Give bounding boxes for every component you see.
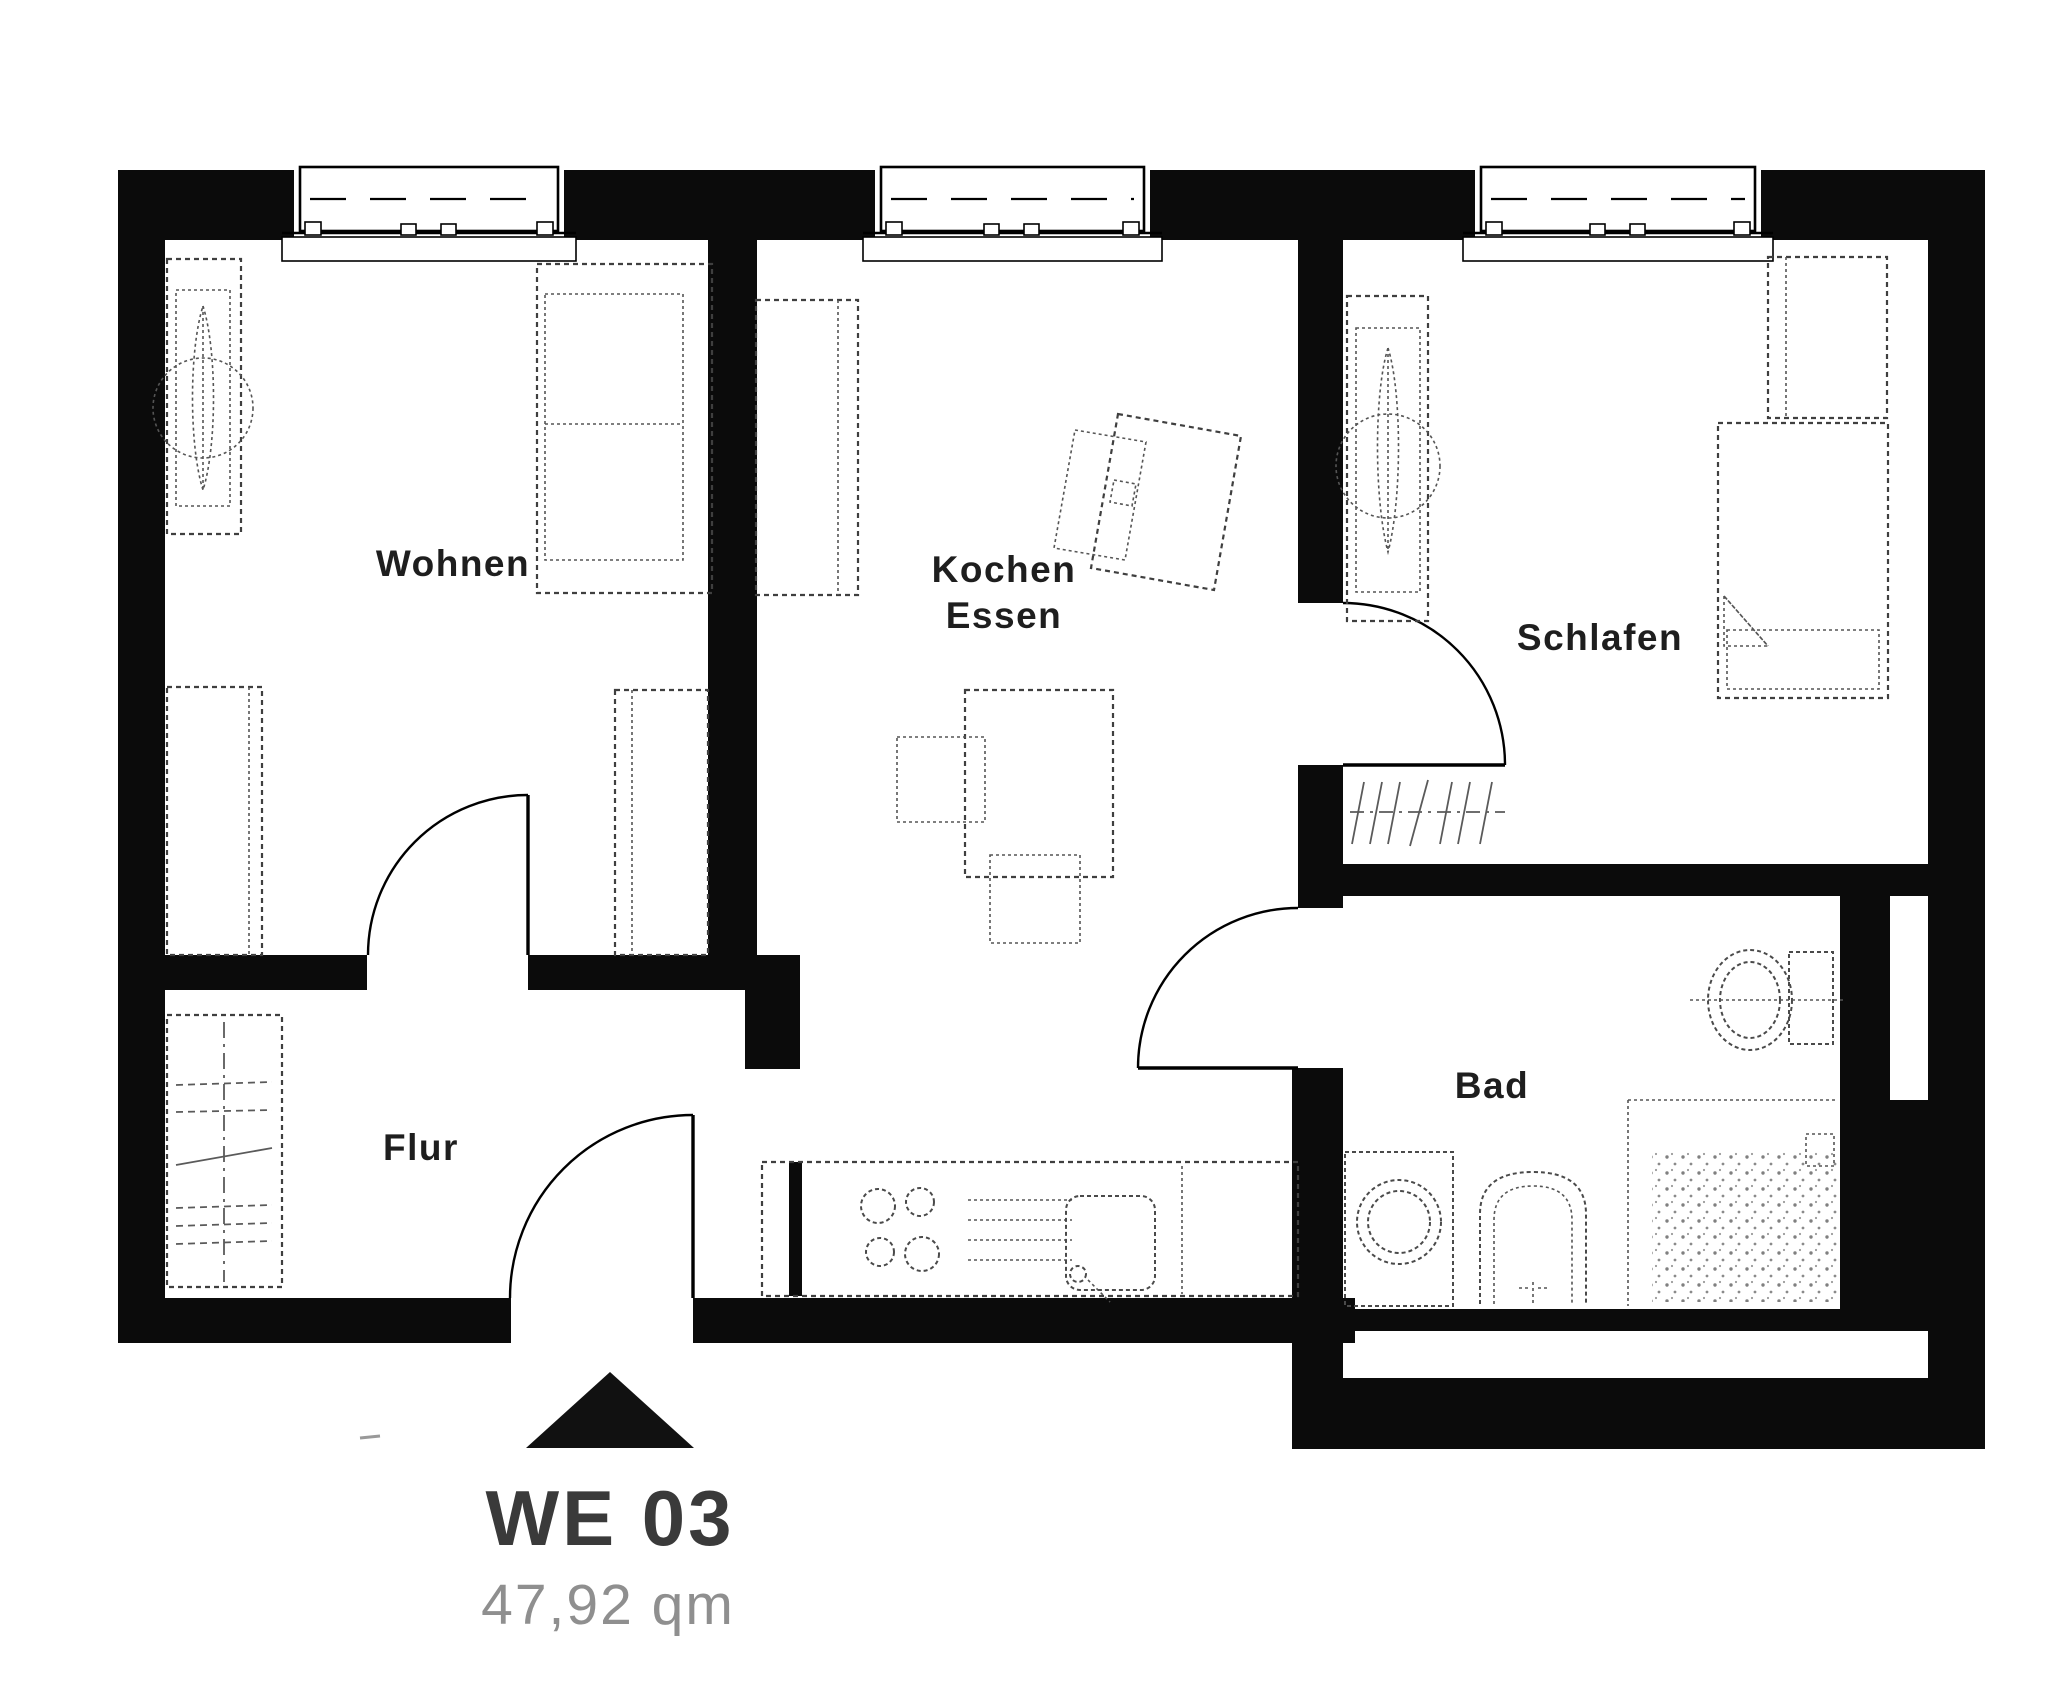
wall-flur-kochen-stub <box>745 955 800 1069</box>
schlafen-window <box>1463 164 1773 261</box>
wall-schlafen-bad <box>1343 864 1928 896</box>
entrance-marker <box>360 1372 694 1448</box>
wohnen-cabinet-left <box>167 687 262 955</box>
kitchen-sink-icon <box>1066 1196 1155 1302</box>
wohnen-furniture <box>153 259 712 955</box>
kochen-window <box>863 164 1162 261</box>
wohnen-door <box>368 795 528 955</box>
wall-shower-side <box>1840 1100 1928 1309</box>
schlafen-radiator-icon <box>1350 780 1505 846</box>
wohnen-window <box>282 164 576 261</box>
bad-door <box>1138 908 1298 1068</box>
kochen-furniture <box>756 300 1298 1302</box>
flur-radiator-icon <box>167 1015 282 1287</box>
schlafen-furniture <box>1336 257 1888 846</box>
counter-end-panel <box>789 1162 802 1296</box>
kochen-label-line1: Kochen <box>932 549 1077 590</box>
stray-mark <box>360 1436 380 1438</box>
bad-fixtures <box>1345 950 1843 1306</box>
washing-machine-icon <box>1345 1152 1453 1306</box>
toilet-icon <box>1690 950 1843 1050</box>
shower-area <box>1628 1100 1838 1306</box>
wall-wohnen-bottom-right <box>528 955 757 990</box>
wohnen-sofa <box>537 264 712 593</box>
wall-wohnen-bottom-left <box>165 955 367 990</box>
wall-left <box>118 170 165 1343</box>
hob-icon <box>861 1188 939 1271</box>
wall-right <box>1928 170 1985 1449</box>
schlafen-cabinet <box>1768 257 1887 418</box>
windows <box>282 164 1773 261</box>
entrance-door <box>510 1115 693 1298</box>
wall-bottom-right <box>1318 1378 1985 1449</box>
wall-duct-wc <box>1840 896 1890 1100</box>
wall-wohnen-kochen <box>708 240 757 990</box>
entrance-opening <box>511 1296 693 1345</box>
bathroom-sink-icon <box>1480 1172 1586 1306</box>
wohnen-label: Wohnen <box>376 543 530 584</box>
entrance-arrow-icon <box>526 1372 694 1448</box>
floor-plan-canvas: Wohnen Kochen Essen Schlafen Flur Bad WE… <box>0 0 2048 1701</box>
kitchen-counter <box>762 1162 1298 1302</box>
wall-kochen-schlafen-lower <box>1298 765 1343 908</box>
shower-floor-texture <box>1652 1150 1838 1302</box>
room-labels: Wohnen Kochen Essen Schlafen Flur Bad <box>376 543 1683 1168</box>
title-block: WE 03 47,92 qm <box>481 1474 735 1637</box>
kochen-tall-cabinet <box>756 300 858 595</box>
dining-chair-west <box>897 737 985 822</box>
schlafen-wardrobe-plant <box>1336 296 1440 621</box>
schlafen-door <box>1343 603 1505 765</box>
unit-area: 47,92 qm <box>481 1573 735 1637</box>
kochen-desk <box>1054 414 1241 590</box>
wohnen-cabinet-right <box>615 690 708 955</box>
wall-bottom-main <box>118 1298 1355 1343</box>
counter-drawers <box>968 1200 1072 1260</box>
dining-table <box>965 690 1113 877</box>
unit-code: WE 03 <box>485 1474 734 1562</box>
wall-bad-floor-edge <box>1318 1309 1928 1331</box>
flur-label: Flur <box>383 1127 459 1168</box>
wall-kochen-schlafen-upper <box>1298 240 1343 603</box>
dining-chair-south <box>990 855 1080 943</box>
kochen-label-line2: Essen <box>946 595 1063 636</box>
wohnen-wardrobe-plant <box>153 259 253 534</box>
schlafen-label: Schlafen <box>1517 617 1683 658</box>
bad-label: Bad <box>1455 1065 1529 1106</box>
bed <box>1718 423 1888 698</box>
